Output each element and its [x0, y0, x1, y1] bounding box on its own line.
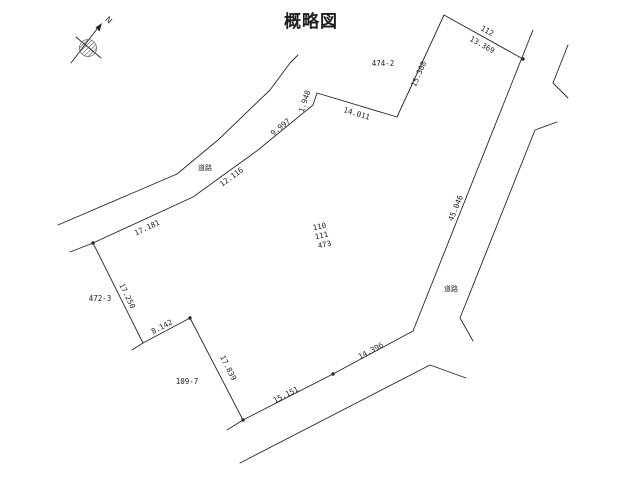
measure-17-250: 17.250 [117, 282, 137, 311]
south-corner-spur [227, 420, 243, 430]
boundary-corner-point [521, 57, 524, 60]
measure-13-369: 13.369 [468, 34, 496, 55]
compass-circle [80, 40, 97, 57]
site-sketch-canvas: 概略図 N 112474-2472-3109-711011147313.3691… [0, 0, 640, 480]
parcel-label-109-7: 109-7 [176, 377, 199, 386]
west-boundary [93, 243, 243, 420]
subject-parcel-number-473: 473 [317, 239, 332, 251]
boundary-lines-layer [58, 15, 568, 463]
measure-15-308: 15.308 [409, 59, 428, 88]
page-title: 概略図 [284, 11, 338, 32]
boundary-corner-point [331, 372, 334, 375]
measure-14-396: 14.396 [357, 340, 386, 361]
north-compass: N [71, 15, 114, 63]
nw-road-outer-edge [58, 55, 298, 225]
measure-9-997: 9.997 [269, 116, 292, 137]
east-road-right-edge-lower [460, 122, 557, 341]
measure-17-181: 17.181 [133, 218, 161, 238]
south-boundary [243, 331, 413, 420]
measure-1-948: 1.948 [297, 89, 313, 114]
south-road-outer-edge [240, 365, 466, 463]
boundary-corner-point [241, 418, 244, 421]
parcel-label-474-2: 474-2 [372, 59, 395, 68]
corner-points-layer [91, 57, 524, 421]
survey-sketch-page: 概略図 N 112474-2472-3109-711011147313.3691… [0, 0, 640, 480]
parcel-label-472-3: 472-3 [89, 294, 112, 303]
east-road-right-edge-upper [553, 45, 568, 98]
road-label-east: 道路 [444, 284, 458, 293]
road-label-northwest: 道路 [198, 163, 212, 172]
west-corner-spur [132, 343, 143, 350]
boundary-corner-point [188, 316, 191, 319]
boundary-corner-point [91, 241, 94, 244]
measure-15-151: 15.151 [272, 385, 300, 405]
compass-north-label: N [103, 15, 113, 26]
labels-layer: 112474-2472-3109-711011147313.36915.3081… [89, 24, 497, 405]
